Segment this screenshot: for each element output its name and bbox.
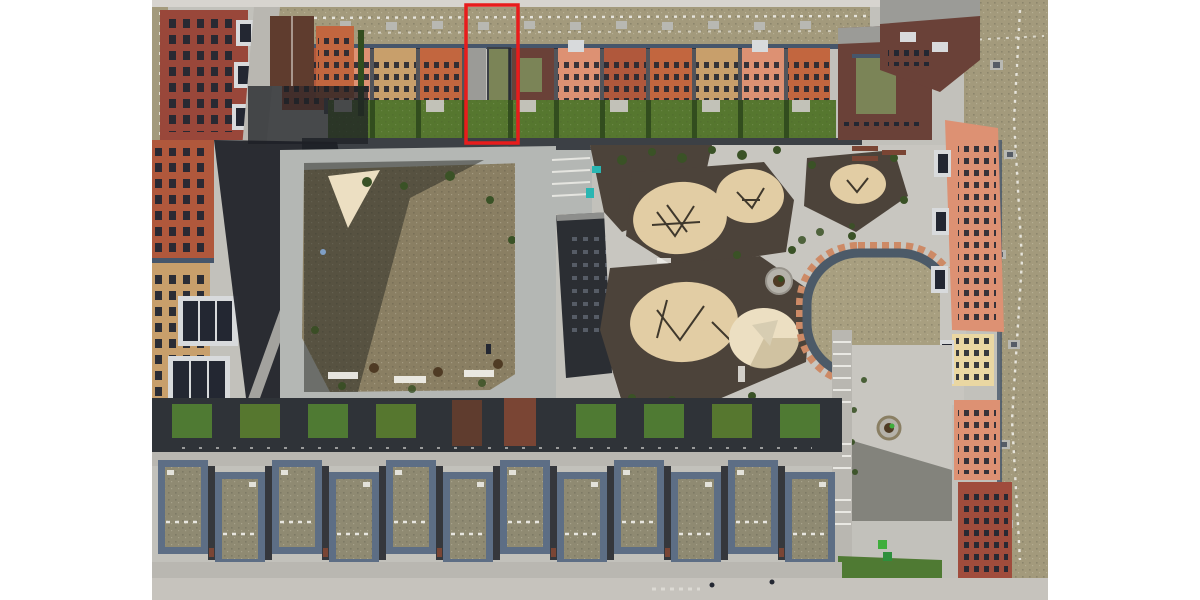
white-balcony-stack <box>931 150 951 293</box>
sidewalk <box>152 562 842 578</box>
aerial-photo-illustration <box>152 0 1048 600</box>
parapet-roof-units <box>158 460 835 566</box>
townhouse-gardens <box>328 100 836 142</box>
green-bin <box>878 540 887 549</box>
pergola <box>504 398 536 446</box>
teal-play-item <box>592 166 601 173</box>
pergola <box>452 400 482 446</box>
screenshot-canvas <box>0 0 1200 600</box>
right-margin <box>1048 0 1200 600</box>
green-bin <box>883 552 892 561</box>
sand-pit <box>716 169 784 223</box>
courtyard <box>280 146 556 406</box>
aerial-photo <box>152 0 1048 600</box>
sand-pit <box>830 164 886 204</box>
left-margin <box>0 0 152 600</box>
street <box>152 578 1048 600</box>
teal-play-item <box>586 188 594 198</box>
